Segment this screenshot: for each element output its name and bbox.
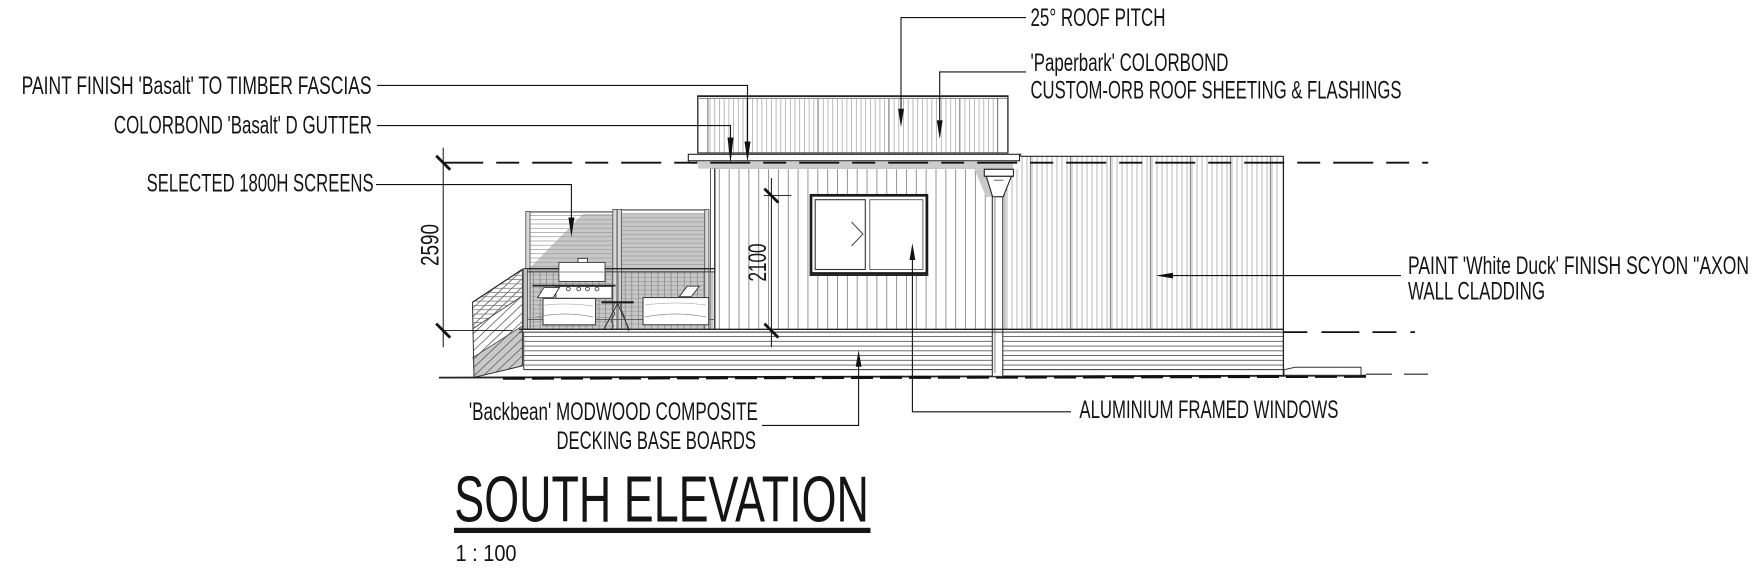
- svg-text:2590: 2590: [417, 224, 445, 266]
- svg-text:PAINT 'White Duck' FINISH SCYO: PAINT 'White Duck' FINISH SCYON "AXON: [1408, 252, 1749, 280]
- svg-text:2100: 2100: [744, 244, 772, 282]
- svg-text:ALUMINIUM FRAMED WINDOWS: ALUMINIUM FRAMED WINDOWS: [1079, 396, 1338, 424]
- svg-text:PAINT FINISH 'Basalt' TO TIMBE: PAINT FINISH 'Basalt' TO TIMBER FASCIAS: [22, 72, 372, 100]
- svg-text:'Backbean' MODWOOD COMPOSITE: 'Backbean' MODWOOD COMPOSITE: [469, 398, 758, 426]
- svg-text:SOUTH ELEVATION: SOUTH ELEVATION: [454, 462, 869, 535]
- svg-text:1 : 100: 1 : 100: [456, 540, 517, 566]
- svg-text:'Paperbark' COLORBOND: 'Paperbark' COLORBOND: [1031, 49, 1229, 77]
- svg-text:COLORBOND 'Basalt' D GUTTER: COLORBOND 'Basalt' D GUTTER: [114, 112, 372, 140]
- svg-text:SELECTED 1800H SCREENS: SELECTED 1800H SCREENS: [147, 170, 374, 198]
- svg-text:CUSTOM-ORB ROOF SHEETING & FLA: CUSTOM-ORB ROOF SHEETING & FLASHINGS: [1031, 76, 1402, 104]
- svg-text:WALL CLADDING: WALL CLADDING: [1408, 277, 1545, 305]
- svg-text:25° ROOF PITCH: 25° ROOF PITCH: [1031, 4, 1166, 32]
- svg-text:DECKING BASE BOARDS: DECKING BASE BOARDS: [557, 427, 757, 455]
